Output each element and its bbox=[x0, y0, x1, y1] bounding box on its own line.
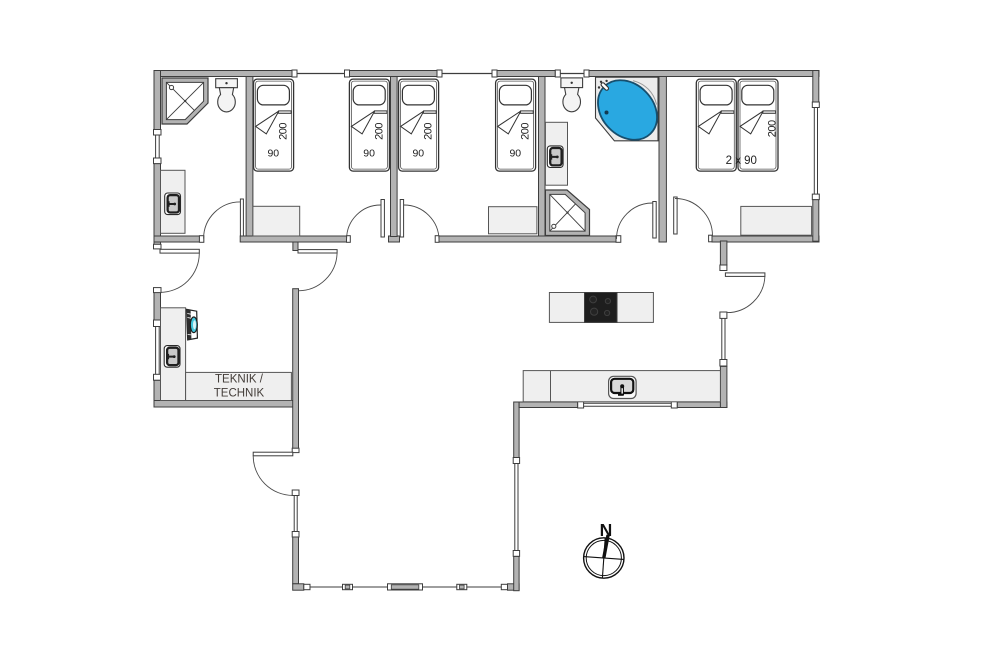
svg-text:200: 200 bbox=[767, 120, 779, 137]
svg-text:TEKNIK /: TEKNIK / bbox=[215, 374, 264, 386]
svg-text:TECHNIK: TECHNIK bbox=[214, 388, 265, 400]
svg-text:2 x 90: 2 x 90 bbox=[726, 155, 757, 167]
svg-text:N: N bbox=[600, 520, 613, 540]
